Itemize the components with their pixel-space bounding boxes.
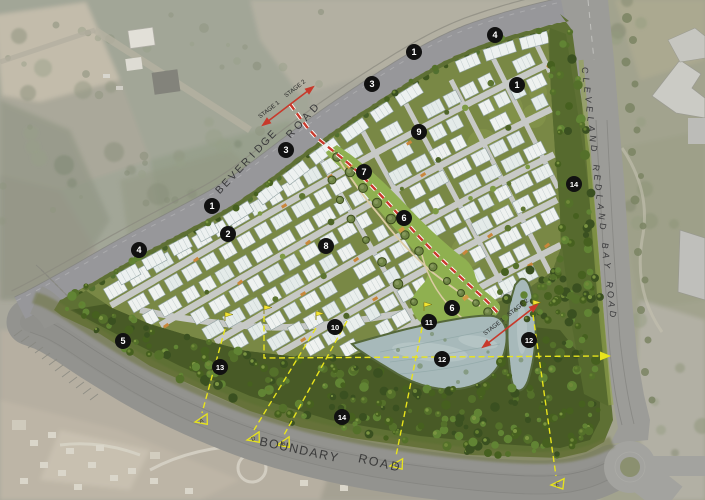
svg-text:4: 4 bbox=[492, 30, 497, 40]
svg-text:7: 7 bbox=[361, 167, 366, 177]
svg-text:2: 2 bbox=[225, 229, 230, 239]
svg-text:11: 11 bbox=[425, 318, 433, 327]
svg-text:13: 13 bbox=[216, 363, 224, 372]
svg-text:10: 10 bbox=[331, 323, 339, 332]
svg-text:E: E bbox=[584, 106, 595, 113]
svg-text:5: 5 bbox=[120, 336, 125, 346]
svg-text:14: 14 bbox=[338, 413, 347, 422]
svg-text:8: 8 bbox=[323, 241, 328, 251]
svg-text:3: 3 bbox=[369, 79, 374, 89]
svg-text:L: L bbox=[581, 77, 591, 83]
svg-text:A: A bbox=[586, 125, 597, 132]
svg-text:1: 1 bbox=[411, 47, 416, 57]
svg-text:1: 1 bbox=[209, 201, 214, 211]
svg-text:6: 6 bbox=[449, 303, 454, 313]
svg-text:14: 14 bbox=[570, 180, 579, 189]
svg-text:E: E bbox=[582, 86, 593, 93]
svg-text:4: 4 bbox=[136, 245, 141, 255]
svg-text:6: 6 bbox=[401, 213, 406, 223]
svg-text:12: 12 bbox=[525, 336, 533, 345]
svg-text:12: 12 bbox=[438, 355, 446, 364]
svg-text:N: N bbox=[587, 135, 598, 143]
svg-text:9: 9 bbox=[416, 127, 421, 137]
svg-text:3: 3 bbox=[283, 145, 288, 155]
svg-text:1: 1 bbox=[514, 80, 519, 90]
svg-text:V: V bbox=[583, 96, 594, 103]
